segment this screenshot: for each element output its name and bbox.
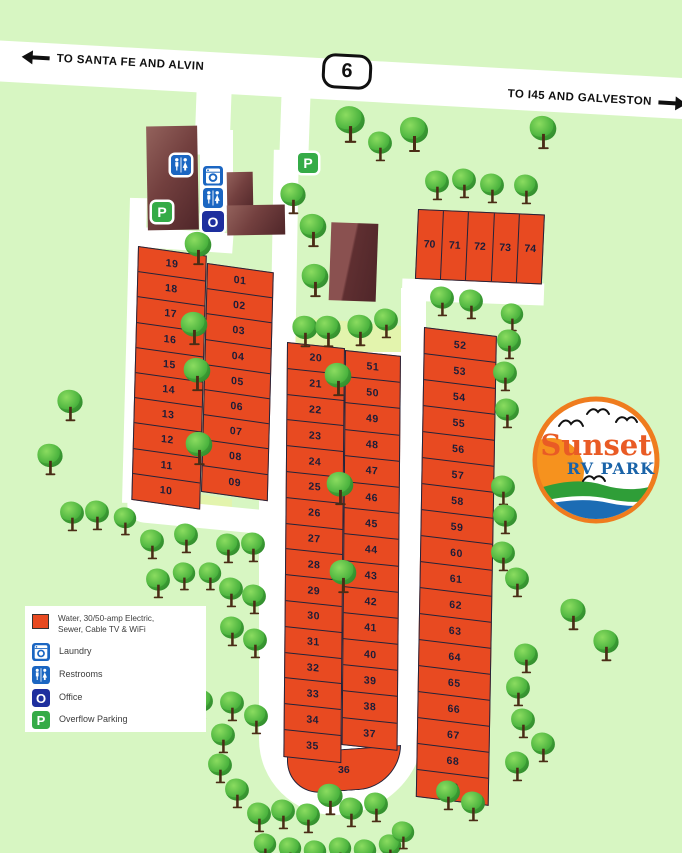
tree xyxy=(240,533,266,564)
tree xyxy=(458,290,484,321)
tree xyxy=(172,562,196,592)
legend-item-lot: Water, 30/50-amp Electric, Sewer, Cable … xyxy=(32,614,180,635)
tree xyxy=(315,316,342,349)
lot-70[interactable]: 70 xyxy=(416,210,443,279)
tree xyxy=(338,798,364,829)
legend-office-label: Office xyxy=(59,689,82,704)
logo-title: Sunset xyxy=(540,428,652,462)
tree xyxy=(328,837,352,853)
tree xyxy=(492,362,518,393)
tree xyxy=(494,399,520,430)
tree xyxy=(218,578,244,609)
tree xyxy=(513,175,539,206)
tree xyxy=(429,287,455,318)
lot-37[interactable]: 37 xyxy=(343,718,397,750)
tree xyxy=(113,507,137,537)
arrow-left-icon xyxy=(26,55,50,60)
pavilion-building xyxy=(329,222,379,302)
legend-panel: Water, 30/50-amp Electric, Sewer, Cable … xyxy=(25,606,206,732)
tree xyxy=(504,752,530,783)
lot-block-mid-left: 20212223242526272829303132333435 xyxy=(283,342,345,763)
tree xyxy=(492,505,518,536)
tree xyxy=(184,232,213,267)
arrow-right-icon xyxy=(659,100,682,105)
tree xyxy=(145,569,171,600)
tree xyxy=(560,599,587,632)
tree xyxy=(391,821,415,851)
tree xyxy=(324,363,353,398)
lot-35[interactable]: 35 xyxy=(284,730,340,762)
tree xyxy=(326,472,355,507)
tree xyxy=(334,106,366,145)
tree xyxy=(183,358,212,393)
tree xyxy=(303,840,327,853)
tree xyxy=(513,644,539,675)
tree xyxy=(363,793,389,824)
overflow-parking-icon: P xyxy=(32,711,50,729)
sunset-rv-park-logo: Sunset RV PARK xyxy=(531,395,661,530)
tree xyxy=(185,432,214,467)
tree xyxy=(347,315,374,348)
tree xyxy=(496,330,522,361)
tree xyxy=(399,117,429,154)
tree xyxy=(500,303,524,333)
tree xyxy=(278,837,302,853)
tree xyxy=(367,132,393,163)
tree xyxy=(530,733,556,764)
tree xyxy=(490,476,516,507)
tree xyxy=(139,530,165,561)
legend-item-restrooms: Restrooms xyxy=(32,666,103,684)
laundry-icon[interactable] xyxy=(203,166,223,186)
tree xyxy=(37,444,64,477)
tree xyxy=(173,524,199,555)
tree xyxy=(59,502,85,533)
tree xyxy=(504,568,530,599)
entrance-road-center xyxy=(279,62,311,158)
rv-park-map: TO SANTA FE AND ALVIN TO I45 AND GALVEST… xyxy=(0,0,682,853)
tree xyxy=(241,585,267,616)
tree xyxy=(84,501,110,532)
tree xyxy=(373,309,399,340)
tree xyxy=(210,724,236,755)
tree xyxy=(280,183,307,216)
legend-item-parking: P Overflow Parking xyxy=(32,711,128,729)
legend-parking-label: Overflow Parking xyxy=(59,711,128,726)
tree xyxy=(329,560,358,595)
tree xyxy=(299,214,328,249)
restrooms-icon-2[interactable] xyxy=(203,188,223,208)
legend-item-office: O Office xyxy=(32,689,82,707)
tree xyxy=(246,803,272,834)
tree xyxy=(57,390,84,423)
overflow-parking-icon-center[interactable]: P xyxy=(298,153,318,173)
tree xyxy=(479,174,505,205)
laundry-icon xyxy=(32,643,50,661)
legend-lot-label: Water, 30/50-amp Electric, Sewer, Cable … xyxy=(58,614,180,635)
tree xyxy=(505,677,531,708)
lot-73[interactable]: 73 xyxy=(491,213,519,282)
tree xyxy=(301,264,330,299)
tree xyxy=(219,692,245,723)
tree xyxy=(353,839,377,853)
lot-71[interactable]: 71 xyxy=(440,211,468,280)
restrooms-icon xyxy=(32,666,50,684)
tree xyxy=(253,833,277,853)
tree xyxy=(593,630,620,663)
tree xyxy=(435,781,461,812)
lot-74[interactable]: 74 xyxy=(516,214,544,283)
restrooms-icon[interactable] xyxy=(171,155,191,175)
office-icon: O xyxy=(32,689,50,707)
office-building-lower xyxy=(227,204,286,235)
legend-laundry-label: Laundry xyxy=(59,643,92,658)
tree xyxy=(180,312,209,347)
legend-restrooms-label: Restrooms xyxy=(59,666,103,681)
lot-block-right-col: 525354555657585960616263646566676869 xyxy=(416,327,497,806)
tree xyxy=(219,617,245,648)
lot-block-top-right: 7071727374 xyxy=(415,209,545,284)
office-icon[interactable]: O xyxy=(202,211,224,232)
highway-6-shield: 6 xyxy=(321,53,373,91)
lot-72[interactable]: 72 xyxy=(465,212,493,281)
tree xyxy=(270,800,296,831)
tree xyxy=(243,705,269,736)
tree xyxy=(460,792,486,823)
lot-swatch xyxy=(32,614,49,629)
legend-item-laundry: Laundry xyxy=(32,643,92,661)
tree xyxy=(529,116,558,151)
tree xyxy=(424,171,450,202)
lot-block-mid-right: 515049484746454443424140393837 xyxy=(342,350,401,751)
tree xyxy=(451,169,477,200)
tree xyxy=(215,534,241,565)
tree xyxy=(242,629,268,660)
overflow-parking-icon-west[interactable]: P xyxy=(152,202,172,222)
logo-subtitle: RV PARK xyxy=(567,459,655,478)
